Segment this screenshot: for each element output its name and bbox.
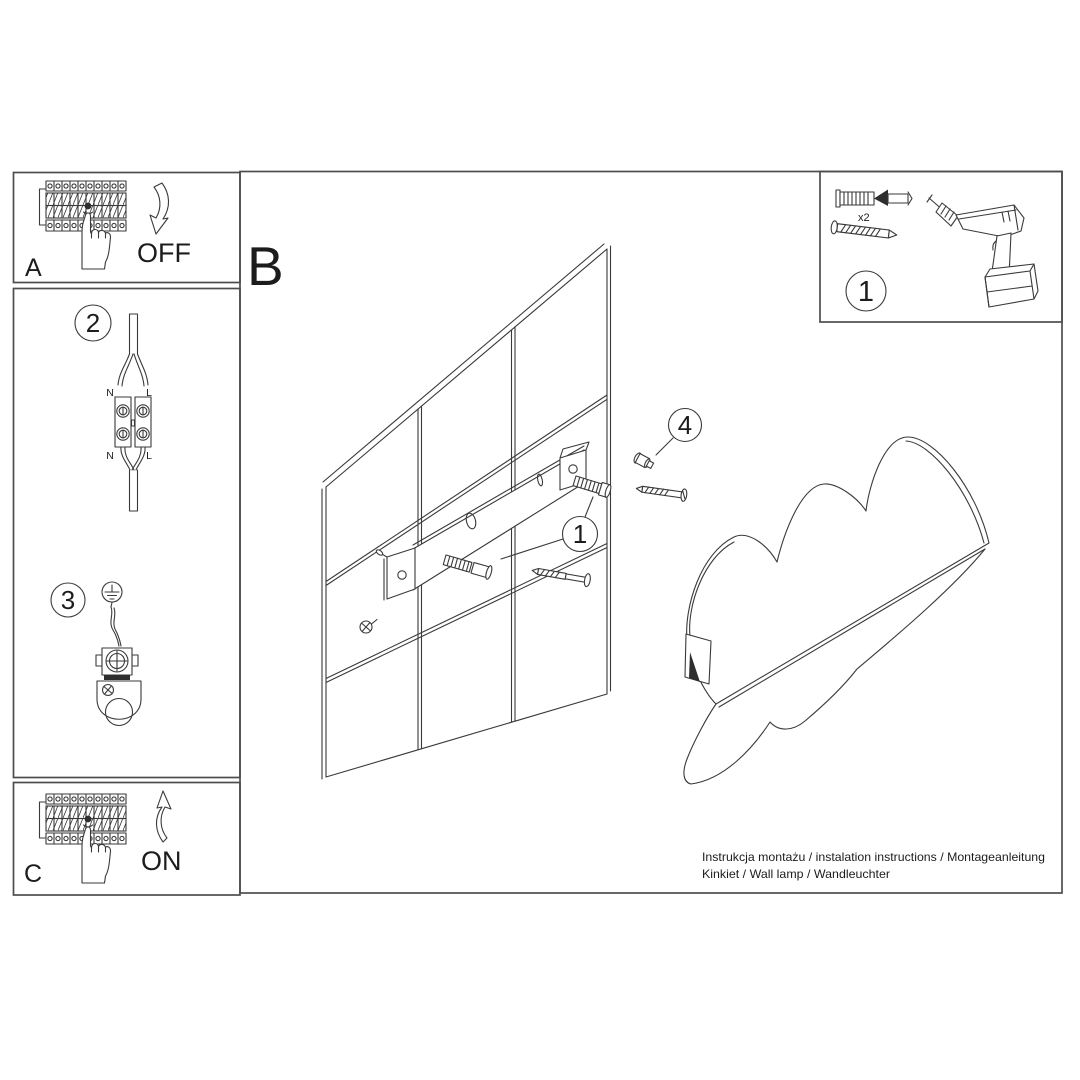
step-3-number: 3: [61, 585, 75, 615]
section-a-label: A: [25, 254, 42, 282]
step-3-ground-diagram: 3: [51, 582, 141, 726]
step-2-wiring-diagram: 2 N L N L: [75, 305, 152, 511]
terminal-l-bottom: L: [146, 450, 152, 462]
ground-symbol-icon: [102, 582, 122, 607]
cloud-front-face: [687, 437, 989, 704]
ground-terminal: [96, 648, 138, 680]
step-2-number: 2: [86, 308, 100, 338]
ground-wire: [111, 607, 121, 646]
footer-line-1: Instrukcja montażu / instalation instruc…: [702, 850, 1045, 864]
terminal-block-link: [132, 420, 135, 426]
plug-quantity-label: x2: [858, 212, 870, 224]
wall-plug-icon: [836, 190, 912, 208]
bolt-icon: [633, 452, 655, 471]
cloud-lamp-drawing: [684, 437, 989, 784]
section-b-label: B: [247, 235, 284, 297]
wall-diagram: 1 4: [322, 244, 702, 779]
panel-a: A OFF: [25, 181, 191, 282]
cable-split-bottom: [121, 447, 145, 470]
callout-4: 4: [656, 409, 702, 456]
parts-box: x2 1: [830, 190, 1038, 312]
callout-4-number: 4: [678, 410, 692, 440]
mounting-plate: [97, 681, 141, 726]
footer-line-2: Kinkiet / Wall lamp / Wandleuchter: [702, 867, 890, 881]
cable-split-top: [118, 354, 148, 386]
parts-number: 1: [858, 276, 874, 308]
panel-c: C ON: [24, 791, 182, 888]
section-c-label: C: [24, 860, 42, 888]
screw-icon: [636, 482, 688, 501]
cable-top: [130, 314, 138, 354]
footer: Instrukcja montażu / instalation instruc…: [702, 850, 1045, 881]
arrow-up-icon: [156, 791, 171, 842]
drill-icon: [927, 195, 1038, 307]
instruction-sheet: A OFF C ON 2 N L N L 3: [0, 0, 1080, 1080]
wall-panel: [326, 249, 607, 777]
arrow-down-icon: [150, 183, 169, 234]
terminal-n-top: N: [106, 387, 114, 399]
on-label: ON: [141, 846, 182, 876]
callout-1-number: 1: [573, 519, 587, 549]
cable-bottom: [130, 470, 138, 511]
instruction-art: A OFF C ON 2 N L N L 3: [0, 0, 1080, 1080]
terminal-n-bottom: N: [106, 450, 114, 462]
off-label: OFF: [137, 238, 191, 268]
